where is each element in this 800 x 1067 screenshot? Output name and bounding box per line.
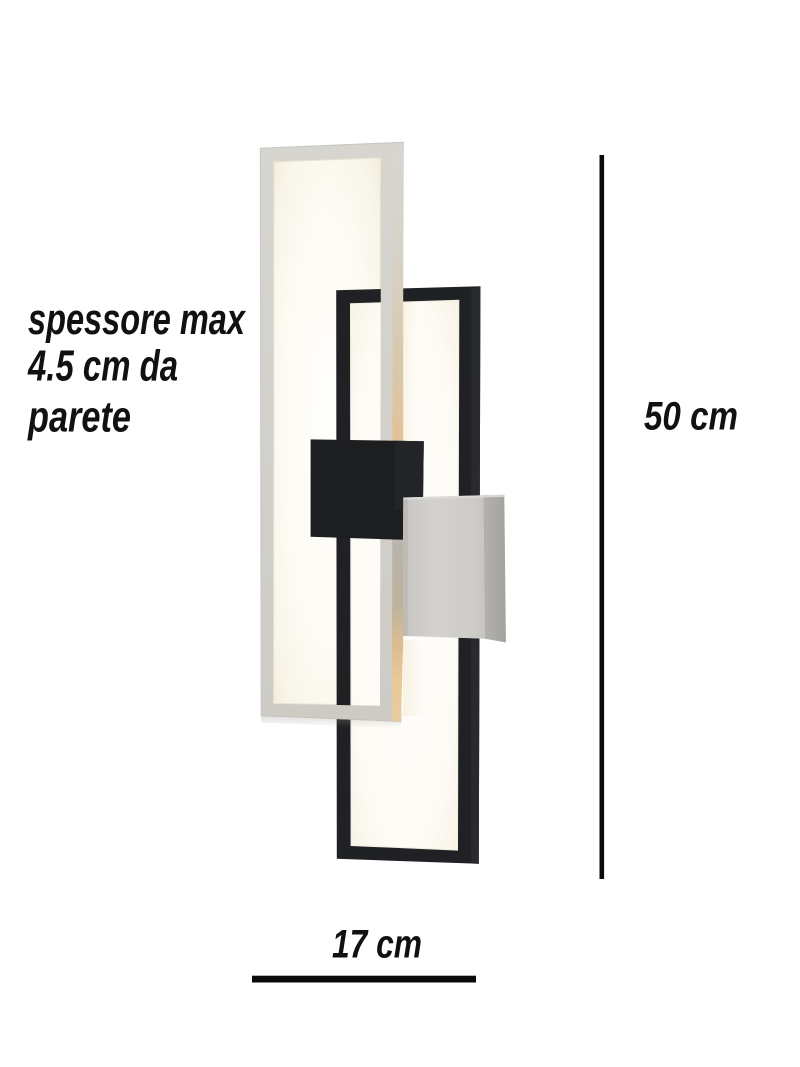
svg-text:parete: parete: [27, 393, 131, 442]
svg-text:17 cm: 17 cm: [332, 923, 422, 967]
svg-text:50 cm: 50 cm: [644, 395, 738, 439]
svg-text:4.5 cm da: 4.5 cm da: [27, 342, 178, 391]
svg-text:spessore max: spessore max: [28, 295, 246, 344]
